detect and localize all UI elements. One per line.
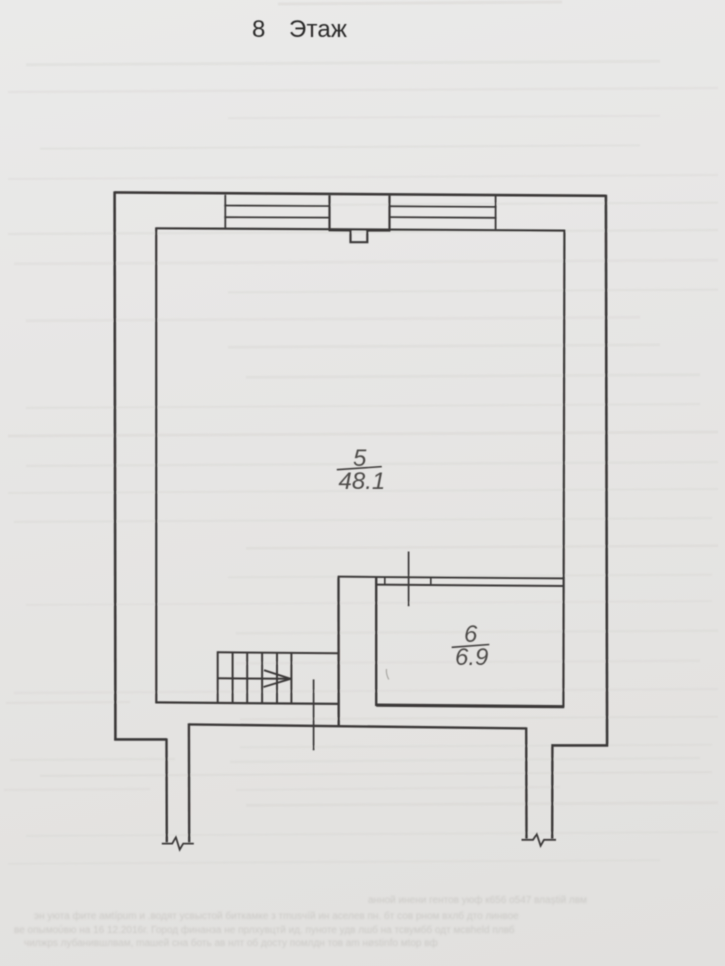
svg-text:8: 8 [252,16,266,43]
svg-text:Этаж: Этаж [289,16,347,43]
svg-text:48.1: 48.1 [339,468,386,495]
svg-text:чилжps лубанившлвам, maшей сна: чилжps лубанившлвам, maшей сна боть ав н… [24,937,438,949]
svg-text:эн уюта фите амtípum и .водят: эн уюта фите амtípum и .водят усвыстой б… [34,910,519,922]
svg-text:6.9: 6.9 [455,644,488,671]
svg-text:анной инени гентов уюф к656 о5: анной инени гентов уюф к656 о547 влаștiй… [368,894,587,906]
svg-text:ве опымоύвю на 16 12.2016г. Го: ве опымоύвю на 16 12.2016г. Город финанз… [14,924,515,936]
